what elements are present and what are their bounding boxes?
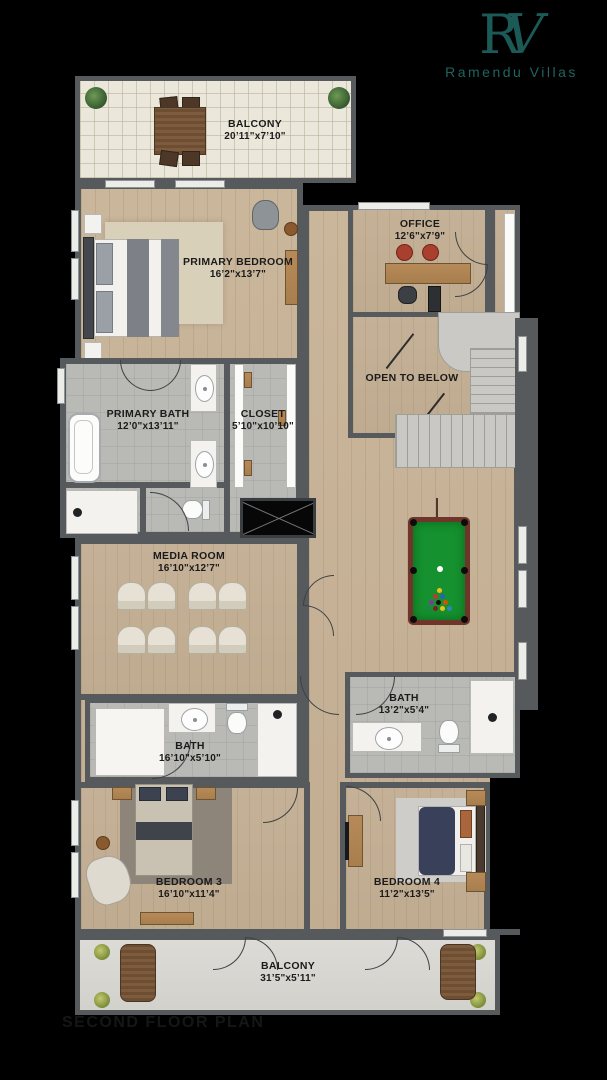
room-name: BALCONY [228, 960, 348, 972]
room-name: BATH [130, 740, 250, 752]
room-name: PRIMARY BEDROOM [178, 256, 298, 268]
media-chair [147, 626, 176, 654]
room-dims: 16’10"x5’10" [130, 753, 250, 764]
vanity [190, 364, 217, 412]
room-label-balcony-bottom: BALCONY 31’5"x5’11" [228, 960, 348, 984]
plant-icon [94, 944, 110, 960]
shower-drain [488, 713, 497, 722]
sink [195, 375, 214, 402]
room-label-bath-left: BATH 16’10"x5’10" [130, 740, 250, 764]
room-dims: 12’0"x13’11" [88, 421, 208, 432]
closet-box [244, 460, 252, 476]
bedroom3-bed [135, 784, 193, 876]
nightstand [466, 790, 486, 806]
room-name: PRIMARY BATH [88, 408, 208, 420]
primary-bed [83, 237, 179, 339]
pool-pocket [410, 567, 417, 574]
closet-box [244, 372, 252, 388]
brand-monogram-icon: RV [424, 8, 599, 62]
monogram-v: V [505, 3, 544, 66]
staircase-upper-flight [470, 348, 520, 414]
room-dims: 13’2"x5’4" [344, 705, 464, 716]
toilet-bowl [227, 712, 247, 734]
window [57, 368, 65, 404]
pool-pocket [461, 616, 468, 623]
nightstand [112, 787, 132, 800]
pool-ball [437, 588, 442, 593]
pool-pocket [461, 567, 468, 574]
room-label-media-room: MEDIA ROOM 16’10"x12’7" [129, 550, 249, 574]
pool-ball [443, 600, 448, 605]
toilet [436, 718, 462, 754]
bed-blanket [161, 239, 179, 337]
shower [257, 703, 297, 777]
window [518, 642, 527, 680]
plant-icon [85, 87, 107, 109]
pool-pocket [410, 616, 417, 623]
brand-logo: RV Ramendu Villas [424, 8, 599, 80]
room-label-bath-right: BATH 13’2"x5’4" [344, 692, 464, 716]
room-name: MEDIA ROOM [129, 550, 249, 562]
nightstand [84, 214, 102, 234]
staircase-lower-flight [395, 414, 520, 468]
shower [66, 490, 138, 534]
office-desk [385, 263, 471, 284]
toilet-tank [226, 703, 248, 711]
room-name: OPEN TO BELOW [352, 372, 472, 384]
room-label-open-to-below: OPEN TO BELOW [352, 372, 472, 384]
media-chair [188, 626, 217, 654]
bed-headboard [83, 237, 94, 339]
plant-icon [94, 992, 110, 1008]
armchair [252, 200, 279, 230]
floor-plan-canvas: RV Ramendu Villas BALCONY 20’11"x7’10" P… [0, 0, 607, 1080]
toilet-tank [438, 744, 460, 753]
toilet [224, 703, 250, 735]
bed-pillow [96, 291, 113, 333]
plant-icon [328, 87, 350, 109]
pool-ball [429, 600, 434, 605]
tv [345, 822, 349, 860]
window [518, 526, 527, 564]
office-closet [490, 205, 520, 318]
room-dims: 12’6"x7’9" [360, 231, 480, 242]
window [518, 336, 527, 372]
office-chair [398, 286, 417, 304]
window [71, 556, 79, 600]
vanity [190, 440, 217, 488]
window [518, 570, 527, 608]
office-guest-chair [422, 244, 439, 261]
room-dims: 5’10"x10’10" [203, 421, 323, 432]
lounge-chair [120, 944, 156, 1002]
plan-title: SECOND FLOOR PLAN [62, 1014, 264, 1032]
window [71, 852, 79, 898]
room-dims: 20’11"x7’10" [195, 131, 315, 142]
media-chair [218, 582, 247, 610]
bed-headboard [476, 804, 485, 878]
bed-pillow [166, 787, 188, 801]
window [71, 800, 79, 846]
lounge-chair [440, 944, 476, 1000]
brand-name: Ramendu Villas [424, 64, 599, 80]
media-chair [117, 626, 146, 654]
pool-pocket [410, 519, 417, 526]
room-label-bedroom-4: BEDROOM 4 11’2"x13’5" [347, 876, 467, 900]
window [71, 606, 79, 650]
bed-pillow [139, 787, 161, 801]
room-name: BATH [344, 692, 464, 704]
room-label-closet: CLOSET 5’10"x10’10" [203, 408, 323, 432]
side-table [284, 222, 298, 236]
room-dims: 31’5"x5’11" [228, 973, 348, 984]
media-chair [218, 626, 247, 654]
pool-ball [440, 594, 445, 599]
shaft-void [240, 498, 316, 538]
balcony-chair [159, 150, 179, 167]
room-name: BEDROOM 4 [347, 876, 467, 888]
vanity [352, 722, 422, 752]
cue-ball [437, 566, 443, 572]
pool-table [408, 517, 470, 625]
shower-drain [73, 508, 82, 517]
bed-blanket [127, 239, 149, 337]
room-name: BALCONY [195, 118, 315, 130]
vanity [168, 703, 216, 733]
media-chair [117, 582, 146, 610]
office-guest-chair [396, 244, 413, 261]
media-chair [147, 582, 176, 610]
room-label-bedroom-3: BEDROOM 3 16’10"x11’4" [129, 876, 249, 900]
window [105, 180, 155, 188]
nightstand [196, 787, 216, 800]
media-console [348, 815, 363, 867]
sink [375, 727, 403, 750]
dresser [140, 912, 194, 925]
pool-ball [440, 606, 445, 611]
pool-ball [447, 606, 452, 611]
window [358, 202, 430, 210]
shower [470, 680, 514, 754]
bed-pillow [460, 810, 472, 838]
bed-blanket [136, 822, 192, 840]
pool-ball [436, 600, 441, 605]
window [175, 180, 225, 188]
room-dims: 11’2"x13’5" [347, 889, 467, 900]
bed-pillow [96, 243, 113, 285]
room-label-primary-bath: PRIMARY BATH 12’0"x13’11" [88, 408, 208, 432]
pool-ball [433, 594, 438, 599]
window [443, 929, 487, 937]
room-label-office: OFFICE 12’6"x7’9" [360, 218, 480, 242]
bed-blanket [419, 807, 455, 875]
bed-pillow [460, 844, 472, 872]
room-name: OFFICE [360, 218, 480, 230]
bath-closet-wall [224, 364, 230, 532]
bedroom4-bed [418, 806, 484, 876]
room-label-primary-bedroom: PRIMARY BEDROOM 16’2"x13’7" [178, 256, 298, 280]
pool-pocket [461, 519, 468, 526]
toilet-tank [202, 500, 210, 520]
shower-drain [273, 710, 282, 719]
window [71, 210, 79, 252]
closet-shelf [504, 213, 515, 314]
room-dims: 16’10"x11’4" [129, 889, 249, 900]
toilet-bowl [439, 720, 459, 744]
nightstand [466, 872, 486, 892]
office-cabinet [428, 286, 441, 312]
room-name: CLOSET [203, 408, 323, 420]
balcony-chair [182, 151, 200, 166]
room-name: BEDROOM 3 [129, 876, 249, 888]
pool-ball [433, 606, 438, 611]
side-table [96, 836, 110, 850]
room-label-balcony-top: BALCONY 20’11"x7’10" [195, 118, 315, 142]
sink [195, 451, 214, 478]
room-dims: 16’10"x12’7" [129, 563, 249, 574]
media-chair [188, 582, 217, 610]
pool-ball [426, 606, 431, 611]
window [71, 258, 79, 300]
room-dims: 16’2"x13’7" [178, 269, 298, 280]
sink [181, 708, 208, 731]
bath-partition-wall [140, 482, 146, 532]
stair-arrow-icon [386, 333, 414, 369]
